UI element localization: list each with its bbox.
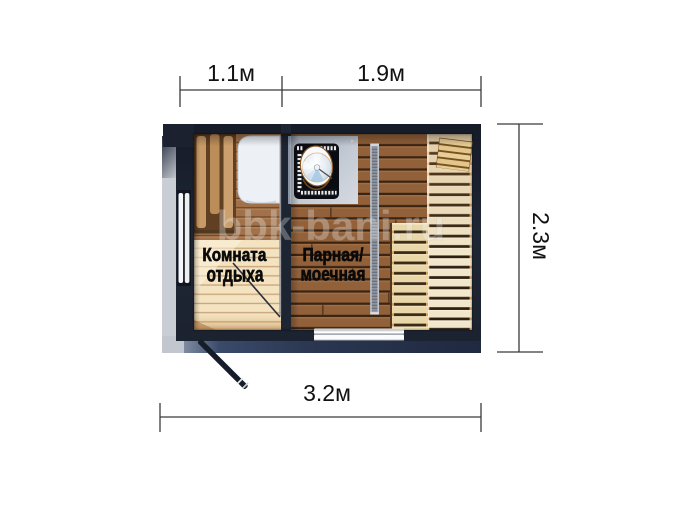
svg-text:2.3м: 2.3м: [528, 212, 554, 260]
svg-text:bbk-bani.ru: bbk-bani.ru: [217, 202, 446, 249]
svg-text:моечная: моечная: [301, 264, 366, 286]
svg-text:1.9м: 1.9м: [357, 60, 405, 86]
svg-text:3.2м: 3.2м: [303, 380, 351, 406]
svg-text:1.1м: 1.1м: [207, 60, 255, 86]
svg-text:отдыха: отдыха: [207, 264, 264, 287]
